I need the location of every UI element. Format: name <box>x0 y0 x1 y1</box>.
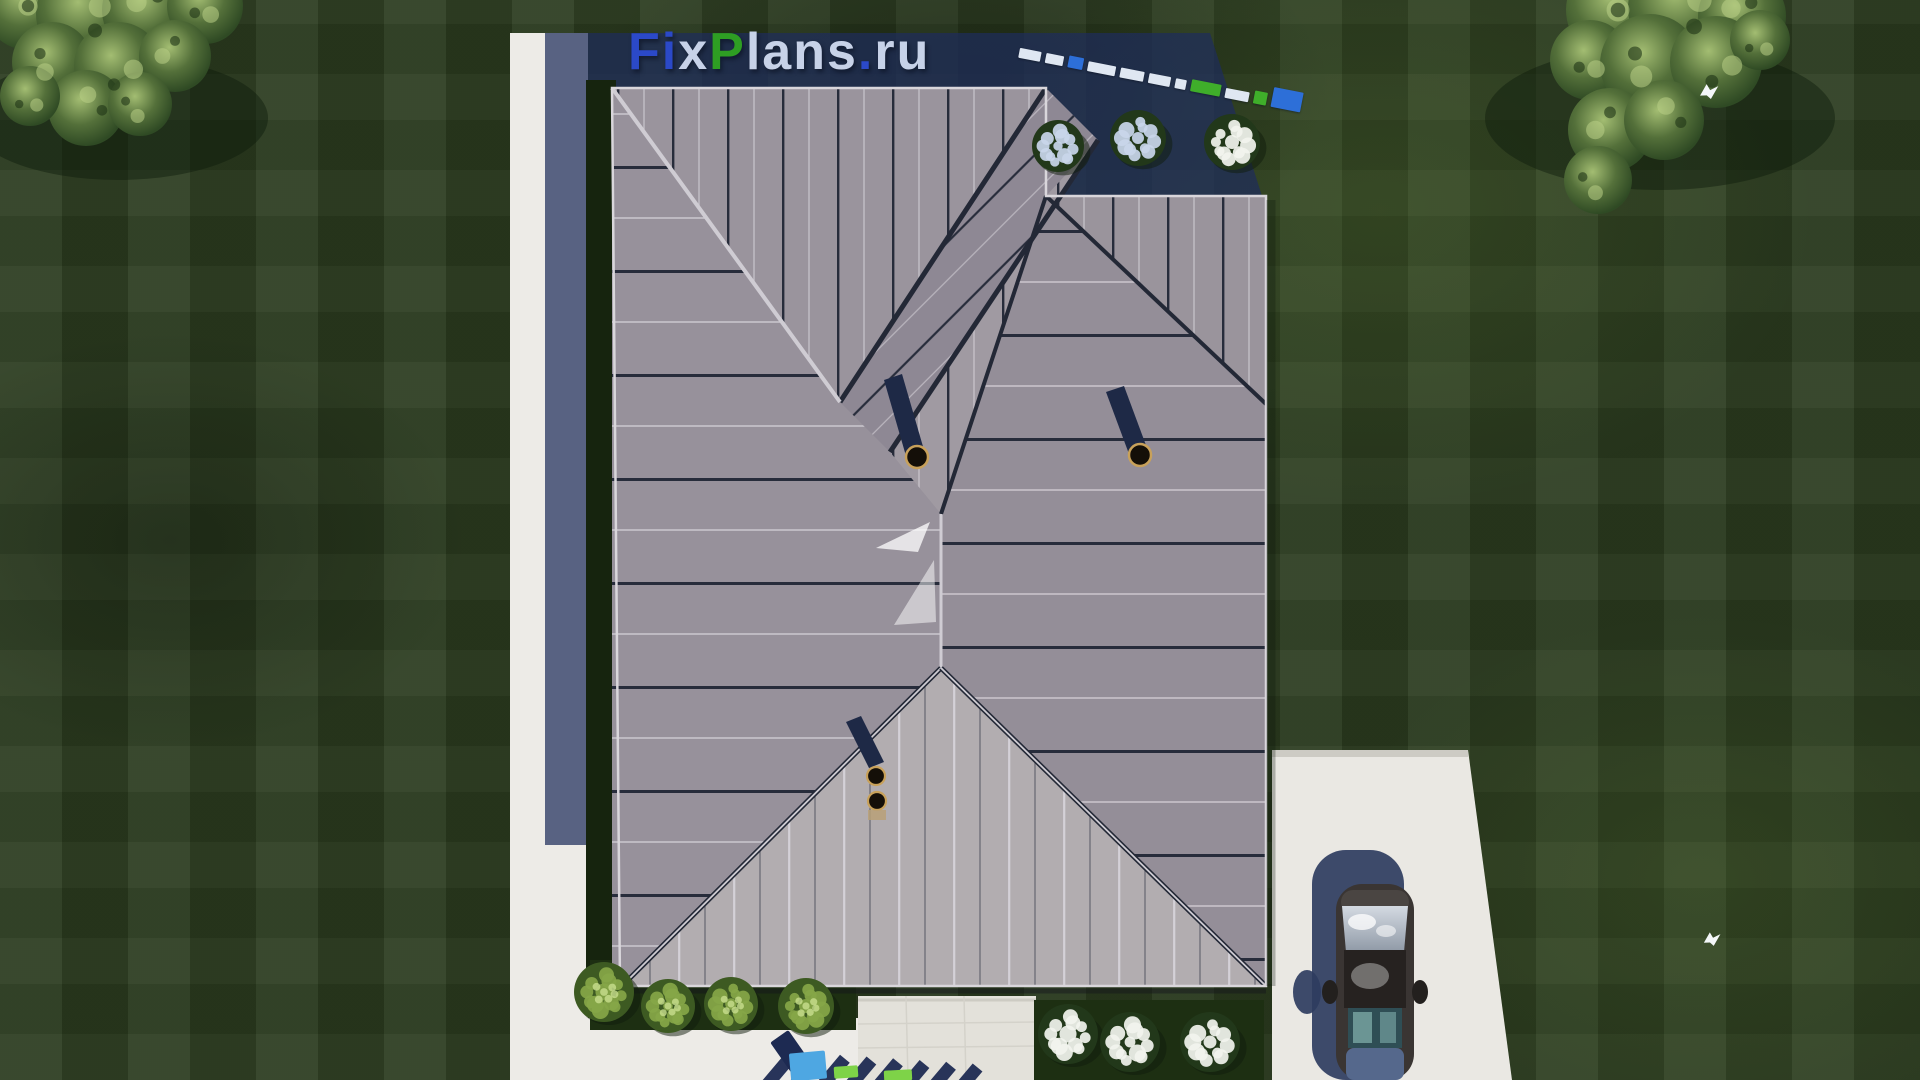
logo-letter: n <box>793 22 827 82</box>
aerial-render: FixPlans.ru <box>0 0 1920 1080</box>
car-mirror <box>1412 980 1428 1004</box>
watermark-block <box>1174 78 1187 90</box>
logo-letter: u <box>897 22 931 82</box>
birds <box>1698 82 1723 948</box>
driveway-curb <box>1272 750 1468 757</box>
watermark-block <box>1067 55 1084 70</box>
car-trunk <box>1346 1048 1404 1080</box>
watermark-block <box>1253 90 1268 105</box>
car-windshield <box>1342 906 1408 952</box>
watermark-block-3d <box>789 1050 827 1080</box>
fixplans-watermark: FixPlans.ru <box>628 22 930 82</box>
bird <box>1702 930 1723 947</box>
car-mirror <box>1322 980 1338 1004</box>
house-roof <box>612 88 1271 991</box>
logo-letter: x <box>678 22 709 82</box>
tree-top-left <box>0 0 268 180</box>
scene-graphics <box>0 0 1920 1080</box>
logo-letter: P <box>709 22 746 82</box>
logo-letter: a <box>762 22 793 82</box>
tree-top-right <box>1485 0 1835 214</box>
logo-letter: s <box>827 22 858 82</box>
watermark-block-3d <box>884 1069 913 1080</box>
logo-letter: i <box>662 22 678 82</box>
logo-letter: r <box>874 22 896 82</box>
logo-letter: . <box>858 22 874 82</box>
logo-letter: l <box>746 22 762 82</box>
hedge-strip <box>586 80 616 986</box>
logo-letter: F <box>628 22 662 82</box>
watermark-block-3d <box>834 1065 859 1079</box>
